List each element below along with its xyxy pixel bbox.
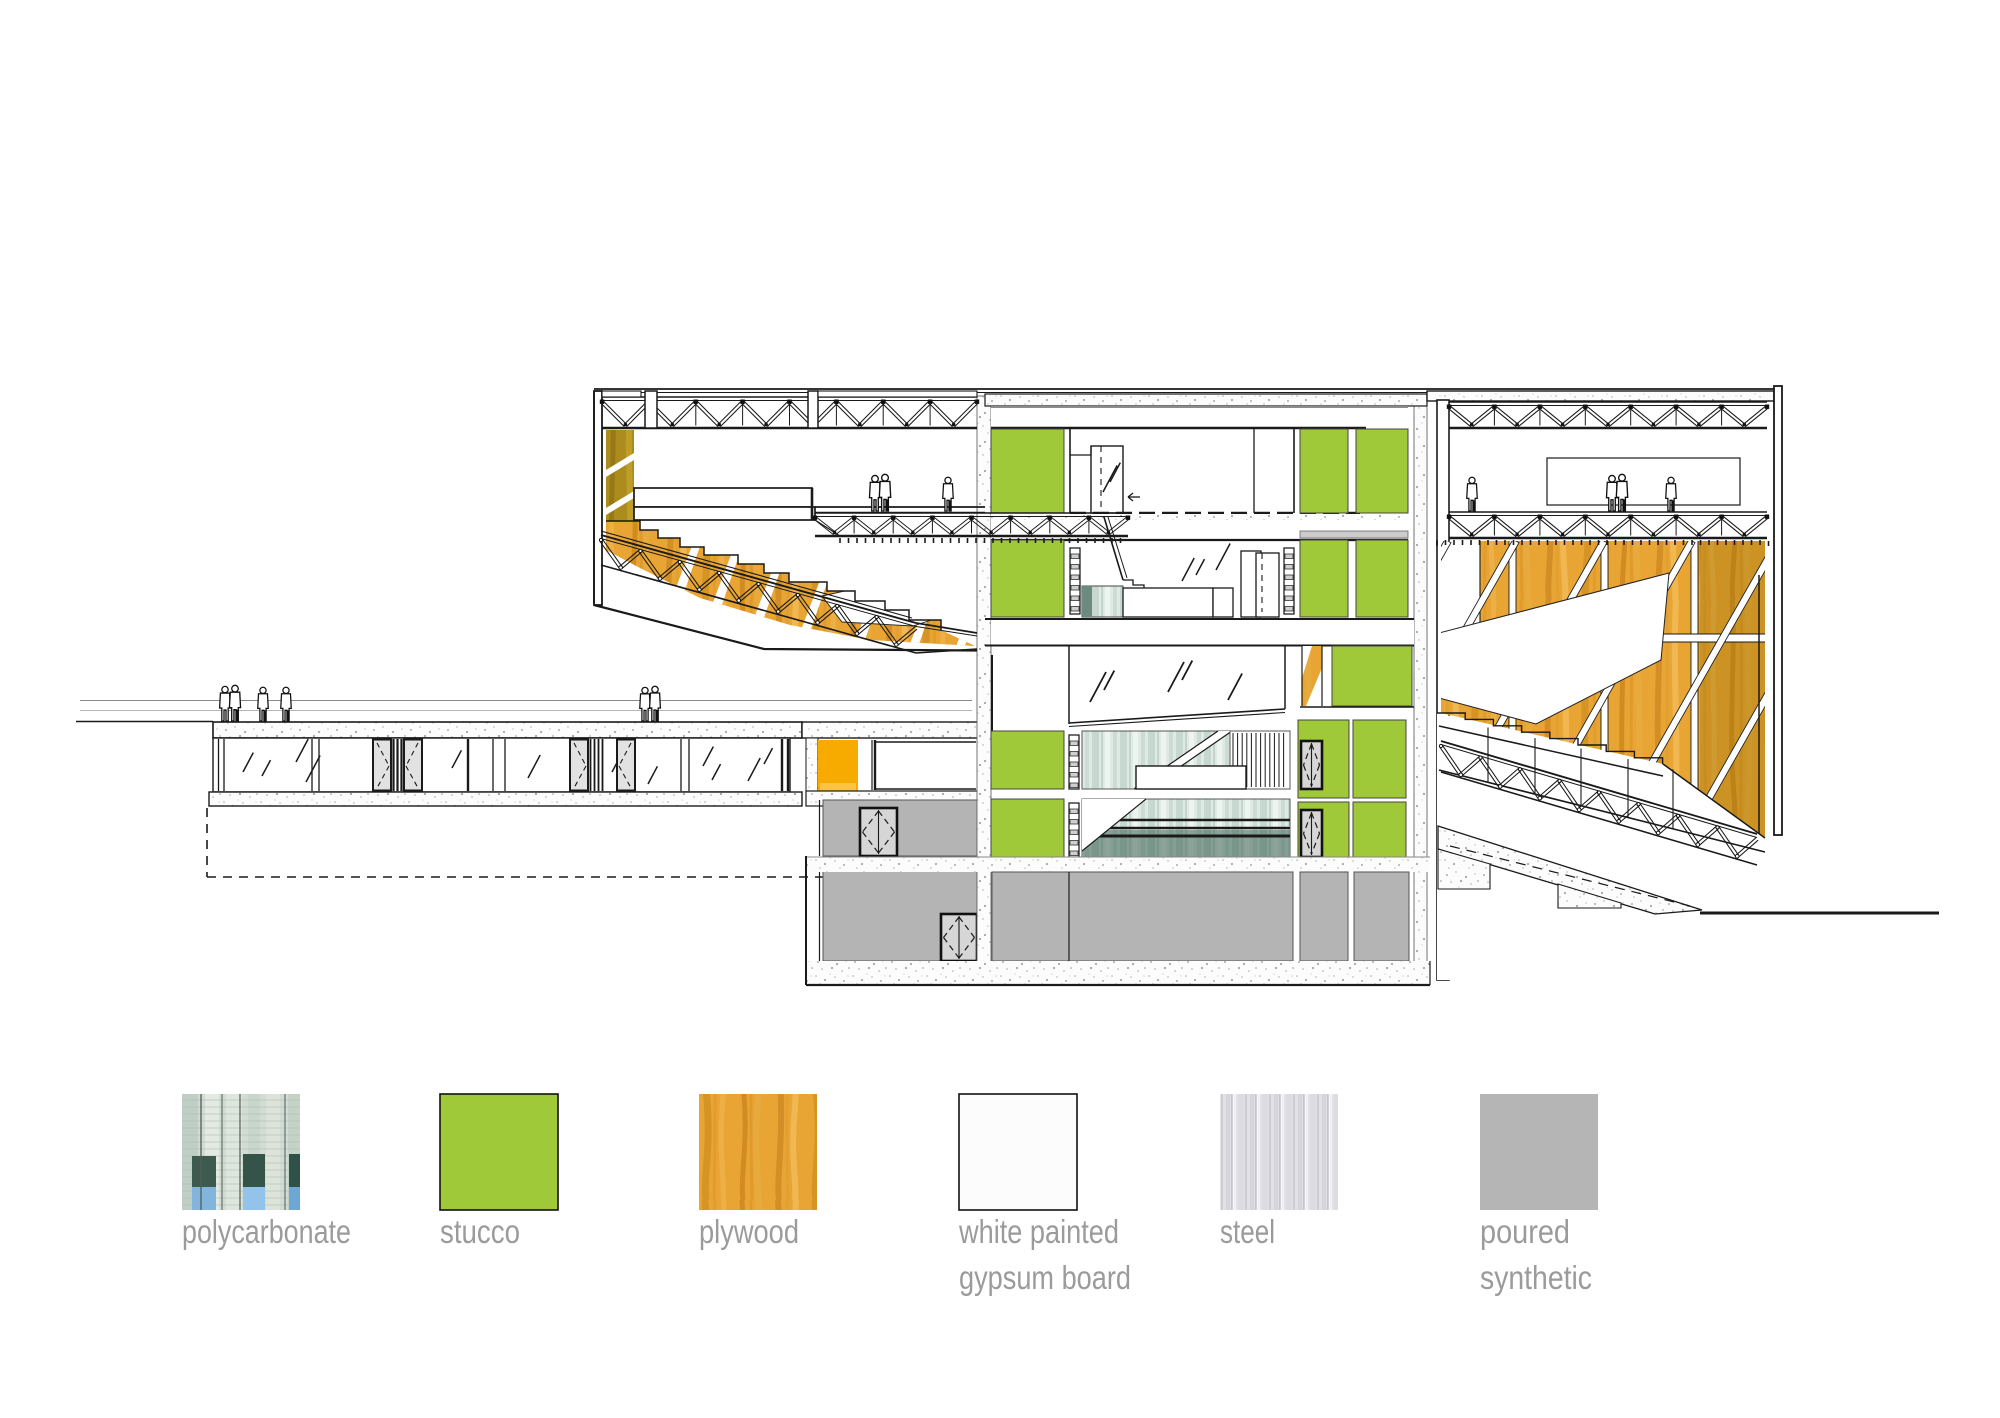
svg-text:poured: poured (1480, 1213, 1570, 1250)
svg-text:polycarbonate: polycarbonate (182, 1213, 351, 1250)
svg-text:white painted: white painted (958, 1213, 1119, 1250)
svg-text:gypsum board: gypsum board (959, 1259, 1131, 1296)
svg-text:steel: steel (1220, 1213, 1275, 1250)
svg-text:stucco: stucco (440, 1213, 520, 1250)
svg-text:plywood: plywood (699, 1213, 799, 1250)
svg-text:synthetic: synthetic (1480, 1259, 1592, 1296)
